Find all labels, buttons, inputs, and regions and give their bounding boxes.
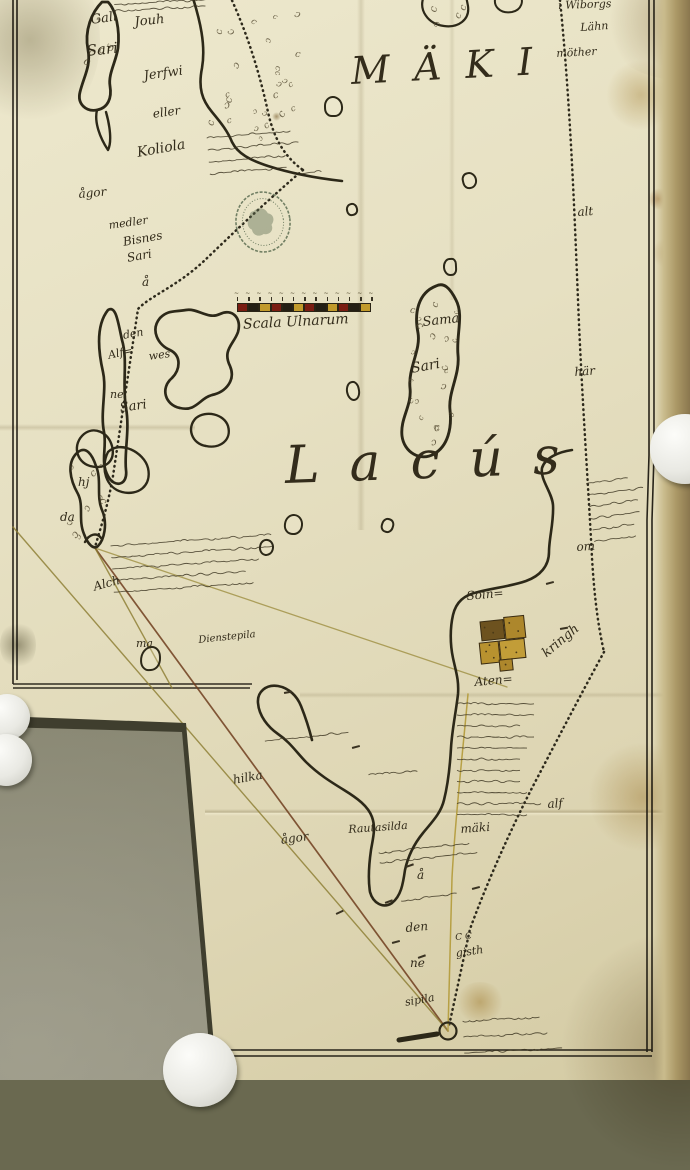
scale-bar-tick xyxy=(304,297,305,301)
map-label: om xyxy=(576,540,595,553)
map-label: Lacús xyxy=(284,429,590,492)
scale-bar-segment xyxy=(237,303,248,312)
map-label: Soin= xyxy=(466,587,504,602)
scale-bar-number-mark: ~ xyxy=(357,290,362,297)
map-label: alf xyxy=(547,797,563,810)
scale-bar-number-mark: ~ xyxy=(346,290,351,297)
map-label: Alf= xyxy=(107,345,133,361)
scale-bar-number-mark: ~ xyxy=(368,290,373,297)
map-label: Dienstepila xyxy=(198,630,256,646)
map-label: å xyxy=(142,276,149,288)
map-label: eller xyxy=(152,104,181,120)
scale-bar-tick xyxy=(271,297,272,301)
map-label: Sari xyxy=(86,41,119,59)
map-label: hilka xyxy=(232,769,263,786)
map-label: Gall xyxy=(90,10,118,27)
map-label: å xyxy=(417,869,424,881)
scale-bar-segment xyxy=(304,303,315,312)
paperweight-disc xyxy=(163,1033,237,1107)
map-label: Aten= xyxy=(474,673,513,688)
map-label: Jerfwi xyxy=(143,65,184,83)
map-label: Lähn xyxy=(580,20,609,33)
scale-bar-tick xyxy=(293,297,294,301)
map-label: Alch xyxy=(92,574,121,593)
scale-bar-segment xyxy=(360,303,371,312)
scale-bar-segment xyxy=(349,303,360,312)
scale-bar-tick xyxy=(237,297,238,301)
scale-bar-tick xyxy=(338,297,339,301)
scale-bar-tick xyxy=(282,297,283,301)
scale-bar-segment xyxy=(282,303,293,312)
scale-bar-number-mark: ~ xyxy=(324,290,329,297)
scale-bar-number-mark: ~ xyxy=(279,290,284,297)
map-label: Bisnes xyxy=(122,229,163,248)
map-label: gisth xyxy=(455,944,484,959)
scale-bar: ~~~~~~~~~~~~~ xyxy=(237,303,371,312)
scale-bar-segment xyxy=(271,303,282,312)
map-label: kringh xyxy=(540,622,582,660)
map-label: Rautasilda xyxy=(348,820,408,835)
map-label: mäki xyxy=(460,821,490,835)
map-label: möther xyxy=(556,46,597,59)
scale-bar-tick xyxy=(371,297,372,301)
map-label: här xyxy=(574,365,595,378)
scale-bar-number-mark: ~ xyxy=(245,290,250,297)
scale-bar-number-mark: ~ xyxy=(268,290,273,297)
sheet-right-edge xyxy=(654,0,690,1080)
map-label: den xyxy=(405,920,428,934)
map-label: ågor xyxy=(78,186,107,200)
map-label: hj xyxy=(78,476,89,488)
map-label: Sari xyxy=(126,248,153,264)
scale-bar-tick xyxy=(327,297,328,301)
scale-bar-tick xyxy=(248,297,249,301)
scale-bar-segment xyxy=(248,303,259,312)
map-label: C C xyxy=(455,933,472,943)
map-label: den xyxy=(122,326,144,340)
map-label: MÄKI xyxy=(350,41,557,90)
map-label: alt xyxy=(577,205,594,218)
scale-bar-tick xyxy=(315,297,316,301)
map-label: ne xyxy=(410,957,425,969)
map-label: Sari xyxy=(119,398,148,415)
scale-bar-number-mark: ~ xyxy=(256,290,261,297)
scale-bar-tick xyxy=(360,297,361,301)
map-label: Jouh xyxy=(134,13,165,29)
scale-bar-segment xyxy=(327,303,338,312)
scale-bar-number-mark: ~ xyxy=(301,290,306,297)
map-label: Sama xyxy=(422,312,460,329)
map-label: ma xyxy=(136,638,153,649)
scale-bar-segment xyxy=(259,303,270,312)
map-label: Koliola xyxy=(136,138,186,160)
map-label: da xyxy=(60,511,75,523)
map-label: Sari xyxy=(410,357,441,376)
scale-bar-number-mark: ~ xyxy=(312,290,317,297)
scale-bar-tick xyxy=(259,297,260,301)
map-label: wes xyxy=(148,348,171,362)
scale-bar-segment xyxy=(293,303,304,312)
map-label: ågor xyxy=(280,830,309,846)
scale-bar-number-mark: ~ xyxy=(234,290,239,297)
scale-bar-tick xyxy=(349,297,350,301)
scale-bar-segment xyxy=(315,303,326,312)
map-label: i Wiborgs xyxy=(558,0,612,11)
map-label: sipila xyxy=(404,992,435,1008)
map-label: ne xyxy=(110,389,124,400)
scale-bar-number-mark: ~ xyxy=(335,290,340,297)
scale-bar-number-mark: ~ xyxy=(290,290,295,297)
map-label: medler xyxy=(108,215,148,231)
